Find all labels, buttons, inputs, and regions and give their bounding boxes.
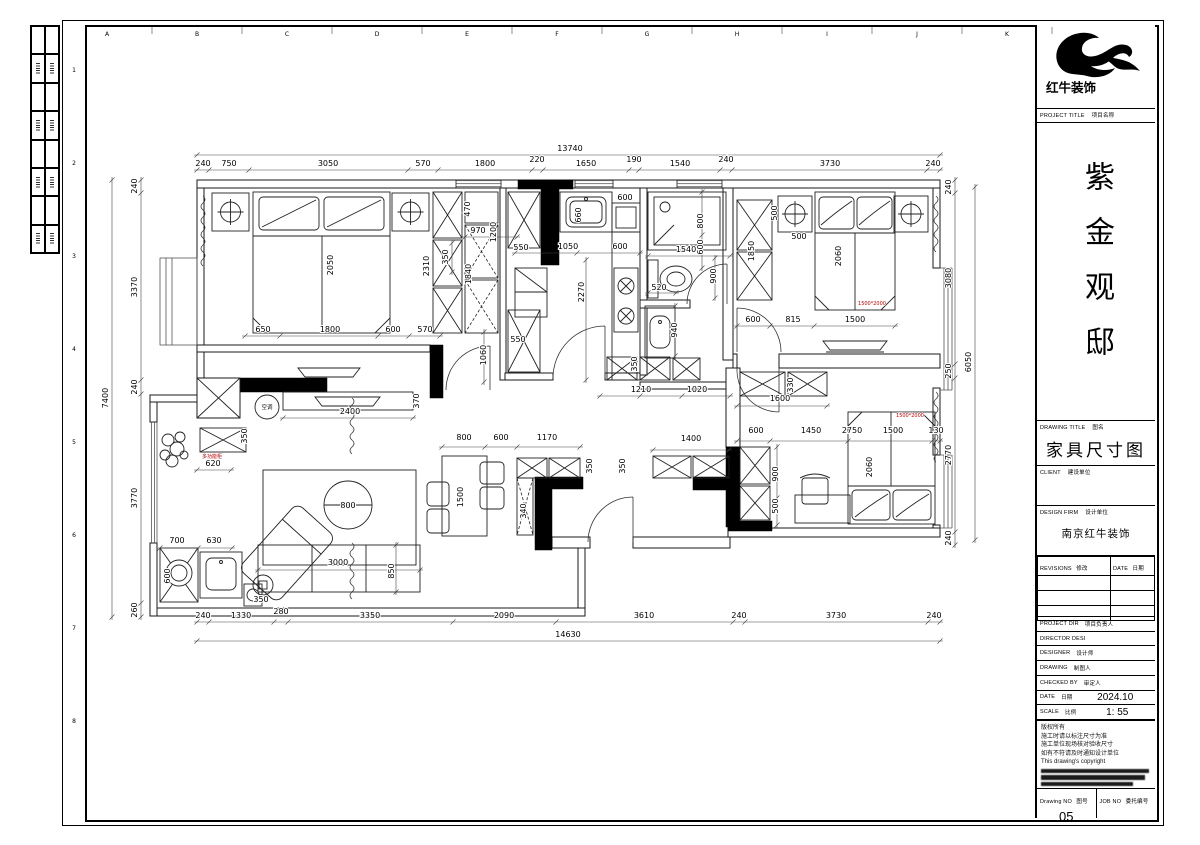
strip-cell	[45, 140, 59, 168]
client-label-en: CLIENT	[1040, 470, 1061, 476]
notes-section: 版权所有 施工时请以标注尺寸为准 施工单位现场核对验收尺寸 如有不符请及时通知设…	[1037, 719, 1155, 788]
project-name-section: 紫金观邸	[1037, 122, 1155, 420]
info-label-cn: 项目负责人	[1085, 620, 1114, 628]
design-firm-name: 南京红牛装饰	[1037, 526, 1155, 541]
illegible-text-line	[1041, 769, 1149, 774]
design-firm-label-cn: 设计单位	[1085, 508, 1108, 516]
sheet-inner-border	[85, 25, 1159, 822]
revisions-label-cn: 修改	[1076, 566, 1087, 572]
info-row-date: DATE 日期 2024.10	[1037, 690, 1155, 705]
strip-cell	[31, 196, 45, 224]
strip-cell	[45, 168, 59, 196]
logo-section: 红牛装饰	[1037, 25, 1155, 108]
info-label-en: DESIGNER	[1040, 650, 1070, 656]
illegible-text-line	[1041, 775, 1145, 780]
project-name: 紫金观邸	[1074, 161, 1118, 420]
strip-cell	[31, 168, 45, 196]
hongniu-bull-logo-icon	[1044, 27, 1148, 79]
drawing-title: 家具尺寸图	[1037, 436, 1155, 461]
info-row-project-dir: PROJECT DIR 项目负责人	[1037, 617, 1155, 631]
job-no-label-en: JOB NO	[1100, 799, 1122, 805]
strip-cell	[31, 54, 45, 82]
drawing-no-cell: Drawing NO 图号 05	[1037, 789, 1096, 818]
revisions-label-en: REVISIONS	[1040, 566, 1072, 572]
revisions-date-label-cn: 日期	[1133, 566, 1144, 572]
logo-text: 红牛装饰	[1037, 77, 1155, 96]
note-line: 版权所有	[1041, 724, 1151, 733]
info-label-cn: 日期	[1061, 693, 1072, 701]
note-line: This drawing's copyright	[1041, 758, 1151, 767]
project-title-label-en: PROJECT TITLE	[1040, 113, 1085, 119]
drawing-no-label-cn: 图号	[1076, 799, 1087, 805]
info-label-cn: 审定人	[1084, 679, 1101, 687]
strip-cell	[45, 54, 59, 82]
strip-cell	[45, 196, 59, 224]
strip-cell	[31, 26, 45, 54]
strip-cell	[31, 225, 45, 253]
client-label-cn: 建设单位	[1068, 468, 1091, 476]
drawing-title-label-cn: 图名	[1092, 423, 1103, 431]
drawing-title-label-en: DRAWING TITLE	[1040, 425, 1085, 431]
info-row-drawing: DRAWING 制图人	[1037, 660, 1155, 675]
strip-cell	[45, 26, 59, 54]
job-no-cell: JOB NO 委托编号	[1096, 789, 1156, 818]
title-block: 红牛装饰 PROJECT TITLE 项目名称 紫金观邸 DRAWING TIT…	[1035, 25, 1155, 818]
binding-strip	[30, 25, 60, 254]
drawing-sheet: 红牛装饰 PROJECT TITLE 项目名称 紫金观邸 DRAWING TIT…	[0, 0, 1200, 845]
drawing-no-value: 05	[1040, 809, 1093, 824]
illegible-text-line	[1041, 782, 1133, 787]
note-line: 施工单位现场核对验收尺寸	[1041, 741, 1151, 750]
info-label-en: DIRECTOR DESI	[1040, 636, 1086, 642]
strip-cell	[45, 111, 59, 139]
info-label-en: SCALE	[1040, 709, 1059, 715]
revisions-date-label-en: DATE	[1113, 566, 1128, 572]
info-rows-section: PROJECT DIR 项目负责人 DIRECTOR DESI DESIGNER…	[1037, 616, 1155, 719]
design-firm-section: DESIGN FIRM 设计单位 南京红牛装饰	[1037, 505, 1155, 555]
design-firm-label-en: DESIGN FIRM	[1040, 510, 1078, 516]
info-row-checked-by: CHECKED BY 审定人	[1037, 675, 1155, 690]
scale-value: 1: 55	[1082, 707, 1152, 718]
client-section: CLIENT 建设单位	[1037, 465, 1155, 505]
info-row-scale: SCALE 比例 1: 55	[1037, 704, 1155, 719]
info-row-designer: DESIGNER 设计师	[1037, 645, 1155, 660]
project-title-label-row: PROJECT TITLE 项目名称	[1037, 108, 1155, 122]
strip-cell	[31, 83, 45, 111]
info-label-en: PROJECT DIR	[1040, 621, 1079, 627]
revisions-section: REVISIONS 修改 DATE 日期	[1037, 555, 1155, 616]
info-label-en: DRAWING	[1040, 665, 1068, 671]
drawing-title-section: DRAWING TITLE 图名 家具尺寸图	[1037, 420, 1155, 465]
drawing-no-label-en: Drawing NO	[1040, 799, 1072, 805]
strip-cell	[45, 83, 59, 111]
job-no-label-cn: 委托编号	[1126, 799, 1149, 805]
strip-cell	[31, 111, 45, 139]
info-label-cn: 制图人	[1074, 664, 1091, 672]
info-label-cn: 比例	[1065, 708, 1076, 716]
info-row-director: DIRECTOR DESI	[1037, 631, 1155, 646]
info-label-en: CHECKED BY	[1040, 680, 1078, 686]
note-line: 施工时请以标注尺寸为准	[1041, 733, 1151, 742]
date-value: 2024.10	[1078, 692, 1152, 703]
revision-row-empty	[1038, 576, 1111, 591]
note-line: 如有不符请及时通知设计单位	[1041, 750, 1151, 759]
info-label-en: DATE	[1040, 694, 1055, 700]
revision-row-empty	[1038, 591, 1111, 606]
strip-cell	[45, 225, 59, 253]
project-title-label-cn: 项目名称	[1092, 111, 1115, 119]
drawing-number-section: Drawing NO 图号 05 JOB NO 委托编号	[1037, 788, 1155, 818]
strip-cell	[31, 140, 45, 168]
info-label-cn: 设计师	[1076, 649, 1093, 657]
